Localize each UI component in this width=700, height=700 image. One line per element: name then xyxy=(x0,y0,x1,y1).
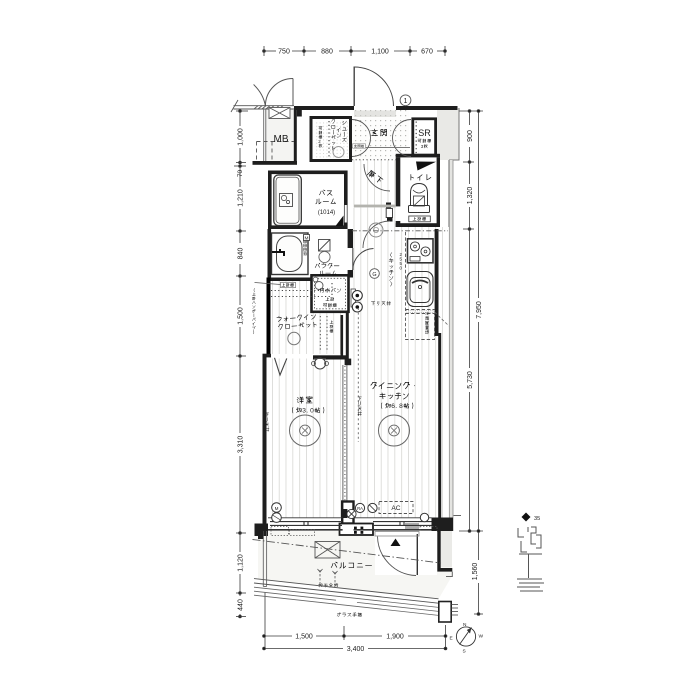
svg-text:SR: SR xyxy=(418,128,431,138)
svg-text:M: M xyxy=(275,506,279,511)
svg-text:M: M xyxy=(305,236,309,242)
svg-text:880: 880 xyxy=(321,49,333,56)
svg-text:70: 70 xyxy=(237,170,244,178)
svg-text:1,100: 1,100 xyxy=(371,49,389,56)
svg-text:1: 1 xyxy=(404,98,408,105)
svg-text:3: 3 xyxy=(421,144,424,149)
svg-text:AC: AC xyxy=(391,505,400,512)
svg-text:1,210: 1,210 xyxy=(238,189,245,207)
svg-text:1,900: 1,900 xyxy=(386,634,404,641)
svg-text:35: 35 xyxy=(534,516,540,522)
svg-text:N: N xyxy=(463,622,467,628)
svg-text:S: S xyxy=(463,649,466,655)
svg-text:7,950: 7,950 xyxy=(476,301,483,319)
svg-text:3,310: 3,310 xyxy=(238,436,245,454)
svg-text:W: W xyxy=(479,634,484,640)
svg-text:1,000: 1,000 xyxy=(238,128,245,146)
svg-text:.: . xyxy=(395,403,397,410)
svg-text:1,500: 1,500 xyxy=(295,634,313,641)
svg-text:3,400: 3,400 xyxy=(347,646,365,653)
svg-text:1,500: 1,500 xyxy=(238,307,245,325)
svg-text:(1014): (1014) xyxy=(318,210,335,216)
svg-text:RA: RA xyxy=(357,506,363,511)
svg-text:440: 440 xyxy=(238,599,245,611)
svg-text:1,320: 1,320 xyxy=(467,187,474,205)
svg-text:5,730: 5,730 xyxy=(467,371,474,389)
svg-text:8: 8 xyxy=(399,403,403,410)
svg-text:750: 750 xyxy=(278,49,290,56)
svg-text:840: 840 xyxy=(238,248,245,260)
svg-text:G: G xyxy=(372,272,376,278)
svg-text:670: 670 xyxy=(421,49,433,56)
svg-text:MB: MB xyxy=(274,134,289,145)
svg-text:E: E xyxy=(450,636,453,642)
svg-text:900: 900 xyxy=(467,130,474,142)
svg-text:0: 0 xyxy=(310,408,314,415)
svg-text:.: . xyxy=(306,408,308,415)
svg-text:1,120: 1,120 xyxy=(238,554,245,572)
svg-text:1,560: 1,560 xyxy=(472,563,479,581)
